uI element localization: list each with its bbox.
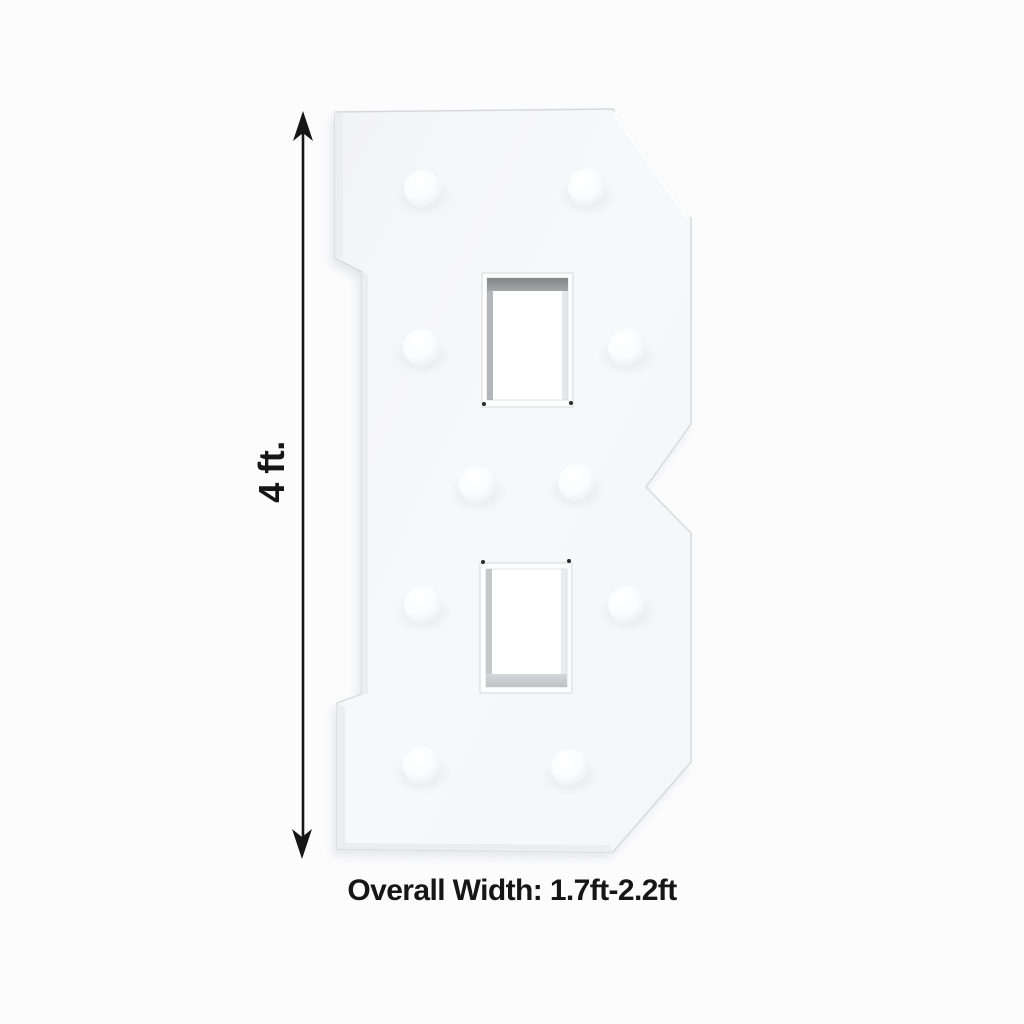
marquee-letter-b: [335, 109, 691, 852]
frame-pin-mark: [481, 560, 485, 564]
lower-counter-hole: [480, 559, 572, 693]
product-dimension-image: 4 ft. Overall Width: 1.7ft-2.2ft: [0, 0, 1024, 1024]
letter-side-panel-bottom-left: [337, 703, 345, 849]
letter-side-panel-top-left: [335, 112, 343, 258]
height-dimension-label: 4 ft.: [251, 441, 293, 503]
marquee-letter-diagram: [0, 0, 1024, 1024]
overall-width-caption: Overall Width: 1.7ft-2.2ft: [0, 874, 1024, 908]
letter-side-panel-stem: [362, 272, 368, 694]
frame-pin-mark: [569, 401, 573, 405]
frame-pin-mark: [482, 402, 486, 406]
frame-pin-mark: [567, 559, 571, 563]
letter-b-face: [335, 109, 691, 852]
upper-counter-hole: [482, 273, 573, 407]
height-dimension-arrow: [292, 111, 313, 859]
